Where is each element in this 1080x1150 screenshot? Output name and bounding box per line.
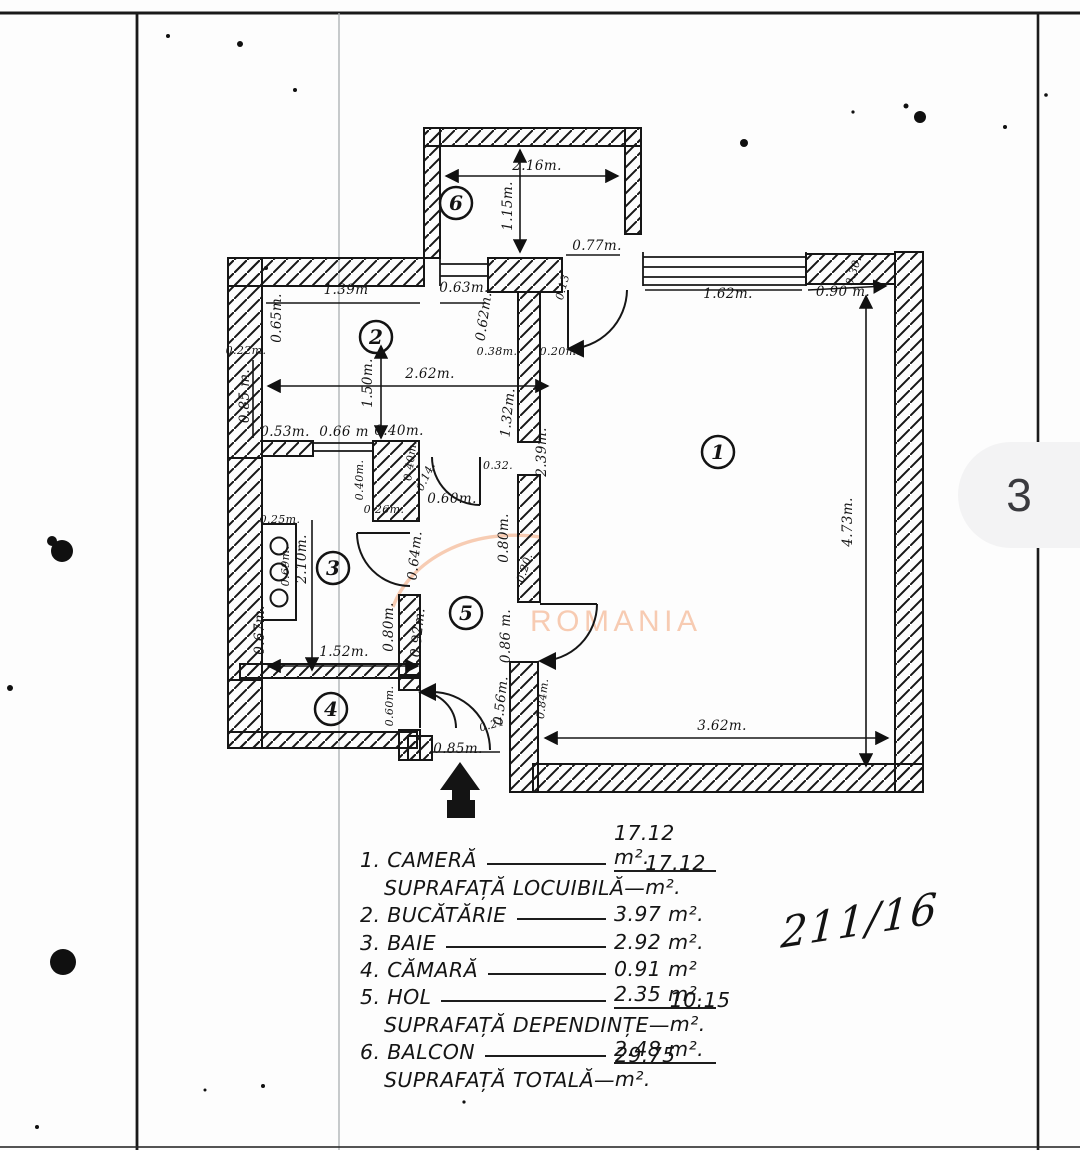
legend-label: 2. BUCĂTĂRIE [360, 903, 507, 927]
legend-value: 3.97 m². [614, 902, 716, 927]
dimension-label: 4.73m. [840, 497, 856, 548]
dimension-label: 0.67m. [252, 605, 268, 655]
dimension-label: 1.62m. [703, 286, 753, 302]
dimension-label: 0.25m. [260, 513, 301, 526]
dimension-label: 0.77m. [572, 238, 622, 254]
legend-item-row: 2. BUCĂTĂRIE3.97 m². [360, 900, 716, 927]
dimension-label: 1.52m. [319, 644, 369, 660]
dimension-label: 0.69m. [279, 546, 292, 587]
dimension-label: 1.39m [324, 282, 369, 298]
page-number-indicator: 3 [958, 442, 1080, 548]
dimension-label: 0.21 [478, 715, 507, 734]
legend-item-row: 5. HOL2.35 m². [360, 982, 716, 1009]
legend-label: 3. BAIE [360, 931, 436, 955]
dimension-label: 0.26m. [364, 503, 405, 516]
room-number-6: 6 [440, 187, 472, 219]
legend-label: SUPRAFAȚĂ LOCUIBILĂ— [360, 876, 645, 900]
dimension-label: 0.60m. [427, 491, 477, 507]
legend-label: SUPRAFAȚĂ DEPENDINȚE— [360, 1013, 670, 1037]
entrance-arrow [440, 762, 480, 818]
legend-value: 0.91 m² [614, 957, 716, 982]
dimension-label: 0.85m. [433, 741, 483, 757]
room-number-1: 1 [702, 436, 734, 468]
dimension-label: 0.62m. [473, 291, 496, 342]
dimension-label: 0.80m. [381, 602, 397, 652]
dimension-label: 0.53m. [260, 424, 310, 440]
svg-text:2: 2 [368, 325, 383, 349]
dimension-label: 0.22m. [226, 344, 267, 357]
legend-leader-line [485, 1055, 606, 1057]
dimension-label: 2.62m. [404, 366, 455, 382]
legend-summary-row: SUPRAFAȚĂ DEPENDINȚE—10.15 m². [360, 1009, 716, 1036]
dimension-label: 0.86 m. [498, 609, 514, 663]
room-number-4: 4 [315, 693, 347, 725]
scanned-floorplan-page: ROMANIA [0, 0, 1080, 1150]
dimension-label: 0.60m. [383, 686, 396, 727]
svg-text:6: 6 [449, 191, 463, 215]
legend-summary-row: SUPRAFAȚĂ TOTALĂ—29.75 m². [360, 1064, 716, 1091]
room-number-2: 2 [360, 321, 392, 353]
dimension-label: 0.66 m [319, 424, 369, 440]
watermark-text: ROMANIA [530, 605, 702, 638]
dimension-label: 0.65m. [269, 293, 285, 343]
svg-text:3: 3 [326, 556, 340, 580]
legend-item-row: 3. BAIE2.92 m². [360, 927, 716, 954]
legend-value: 2.92 m². [614, 930, 716, 955]
legend-label: SUPRAFAȚĂ TOTALĂ— [360, 1068, 615, 1092]
legend-label: 6. BALCON [360, 1040, 475, 1064]
legend-summary-row: SUPRAFAȚĂ LOCUIBILĂ—17.12 m². [360, 872, 716, 899]
watermark: ROMANIA [393, 535, 702, 638]
svg-text:4: 4 [324, 697, 338, 721]
legend-leader-line [517, 918, 606, 920]
legend-leader-line [446, 946, 606, 948]
legend-value: 17.12 m². [645, 851, 747, 900]
legend-leader-line [487, 863, 606, 865]
legend-value: 29.75 m². [615, 1043, 717, 1092]
dimension-label: 0.64m. [404, 530, 425, 581]
dimension-label: 0.90 m. [816, 284, 870, 300]
legend-item-row: 4. CĂMARĂ0.91 m² [360, 955, 716, 982]
legend-leader-line [488, 973, 606, 975]
room-number-5: 5 [450, 597, 482, 629]
dimension-label: 3.62m. [697, 718, 747, 734]
legend-value: 10.15 m². [670, 988, 772, 1037]
area-legend: 1. CAMERĂ17.12 m².SUPRAFAȚĂ LOCUIBILĂ—17… [360, 845, 716, 1092]
dimension-label: 0.85 m. [237, 369, 253, 423]
legend-label: 5. HOL [360, 985, 431, 1009]
dimension-label: 0.40m. [374, 423, 424, 439]
legend-label: 4. CĂMARĂ [360, 958, 478, 982]
dimension-label: 0.40m. [353, 460, 366, 501]
svg-text:1: 1 [711, 440, 725, 464]
legend-leader-line [441, 1000, 606, 1002]
dimension-label: 1.50m. [360, 358, 376, 408]
legend-label: 1. CAMERĂ [360, 848, 477, 872]
page-number: 3 [1006, 468, 1032, 522]
dimension-label: 2.10m. [294, 534, 310, 585]
room-number-3: 3 [317, 552, 349, 584]
dimension-label: 0.20m. [540, 345, 581, 358]
dimension-label: 0.32. [483, 459, 513, 472]
dimension-label: 1.32m. [497, 387, 518, 438]
dimension-label: 1.15m. [500, 181, 516, 231]
dimension-label: 2.16m. [511, 158, 562, 174]
dimension-label: 2.39m. [534, 427, 550, 478]
svg-text:5: 5 [459, 601, 473, 625]
dimension-label: 0.38m. [477, 345, 518, 358]
dimension-label: 0.80m. [496, 513, 512, 563]
